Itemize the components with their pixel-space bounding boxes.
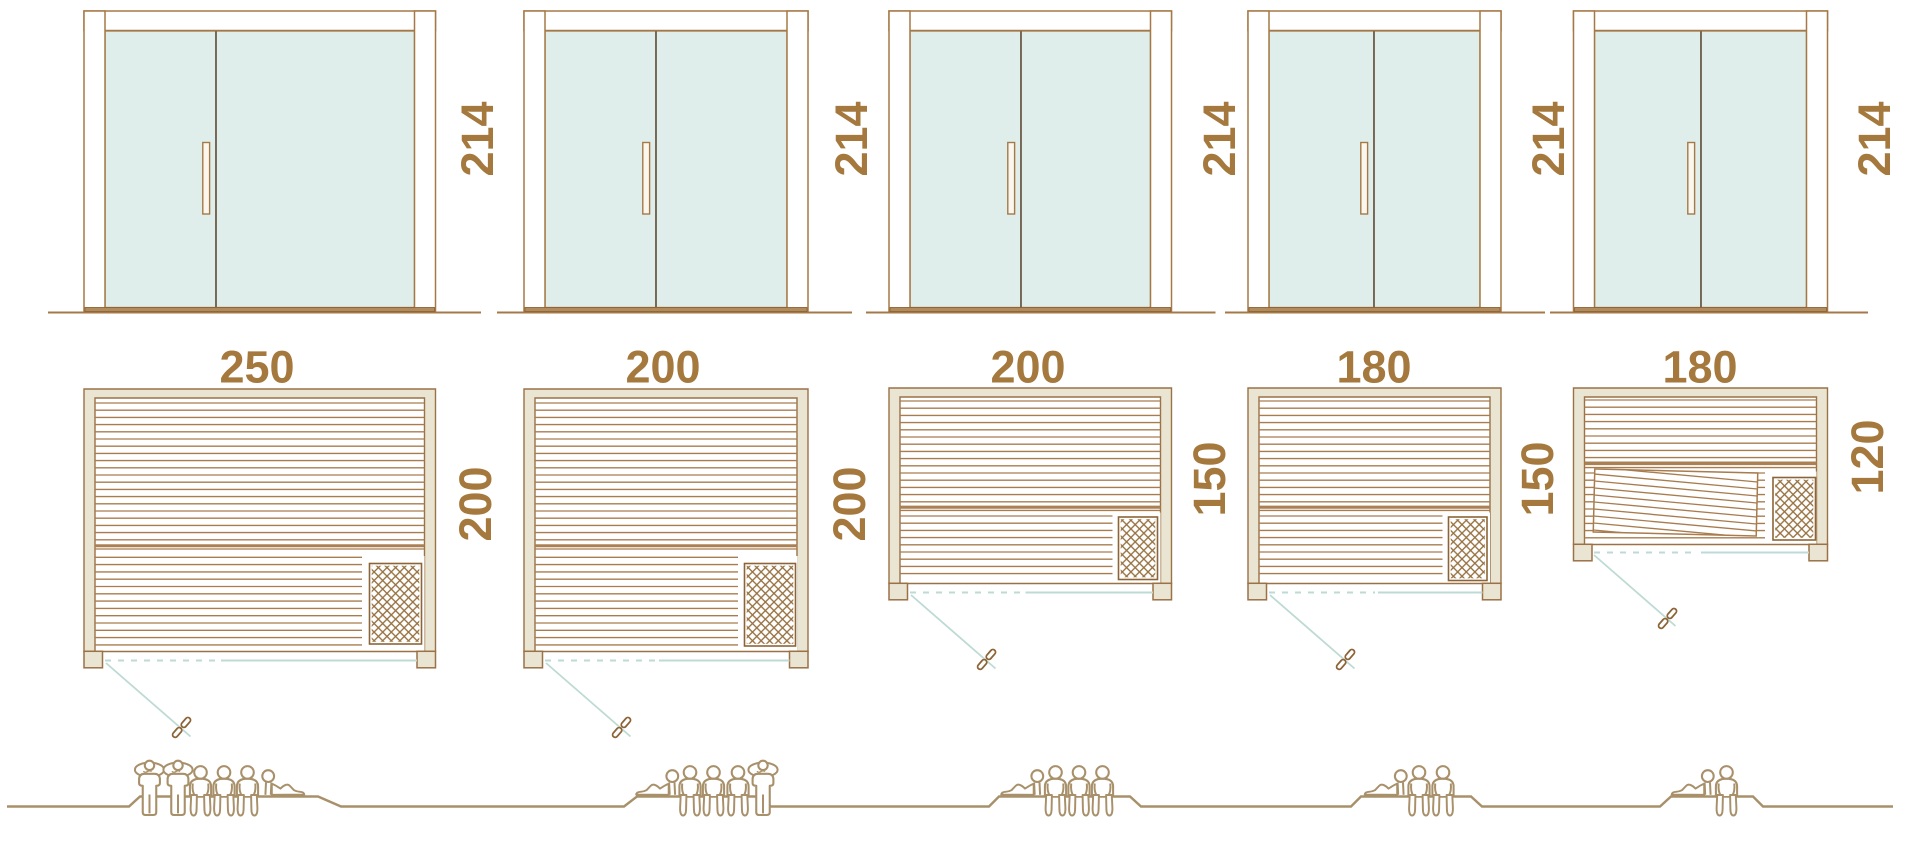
svg-text:180: 180 <box>1336 342 1411 393</box>
svg-text:214: 214 <box>826 101 877 176</box>
svg-text:180: 180 <box>1662 342 1737 393</box>
svg-text:150: 150 <box>1512 441 1563 516</box>
svg-text:200: 200 <box>824 466 875 541</box>
svg-text:150: 150 <box>1184 441 1235 516</box>
svg-text:214: 214 <box>1523 101 1574 176</box>
svg-text:200: 200 <box>625 342 700 393</box>
svg-text:200: 200 <box>990 342 1065 393</box>
svg-text:214: 214 <box>1194 101 1245 176</box>
svg-text:214: 214 <box>452 101 503 176</box>
svg-text:120: 120 <box>1842 419 1893 494</box>
svg-text:200: 200 <box>450 466 501 541</box>
svg-text:214: 214 <box>1849 101 1900 176</box>
svg-text:250: 250 <box>219 342 294 393</box>
